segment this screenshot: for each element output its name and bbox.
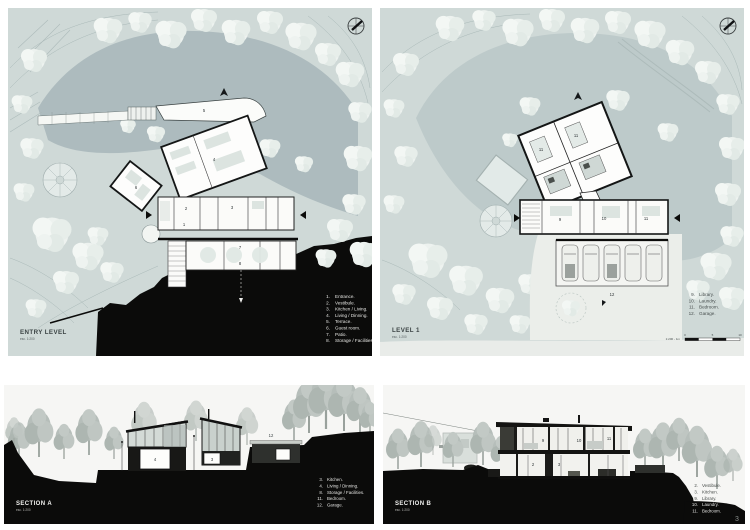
entry-wing [158,197,294,230]
legend-label: Bedroom. [702,509,721,514]
legend-label: Terrace. [335,319,352,324]
legend-label: Kitchen / Living. [335,307,367,312]
parked-cars [562,245,662,281]
legend-label: Vestibule. [335,300,355,305]
floor-slab [498,450,630,454]
legend-num: 11. [317,496,323,501]
panel-scale: esc. 1:200 [16,508,31,512]
svg-text:12: 12 [269,433,274,438]
legend-num: 3. [694,489,698,494]
legend-num: 1. [326,294,330,299]
legend-num: 3. [319,477,323,482]
legend-label: Living / Dinning. [327,483,358,488]
legend-num: 11. [689,305,695,310]
panel-title: SECTION B [395,501,432,507]
legend-label: Bedroom. [327,496,346,501]
small-round-feature [142,225,160,243]
legend-label: Guest room. [335,326,360,331]
legend-label: Storage / Facilities. [327,490,364,495]
svg-text:10: 10 [577,438,582,443]
panel-scale: esc. 1:200 [395,508,410,512]
panel-title: ENTRY LEVEL [20,329,67,336]
legend-label: Kitchen. [702,489,718,494]
legend-label: Living / Dinning. [335,313,368,318]
level-1-plan-panel: 11 11 9 10 11 12 9.Library. 10.Laundry. … [380,8,744,356]
svg-text:11: 11 [574,133,579,138]
legend-num: 4. [326,313,330,318]
legend-num: 4. [319,483,323,488]
legend-num: 7. [326,332,330,337]
legend-num: 8. [319,490,323,495]
legend-label: Library. [699,292,714,297]
terrace-shed [635,465,665,473]
base-slab [498,476,630,479]
drawing-sheet: 5 4 6 2 3 1 7 8 1.Entrance. 2.Vestibule.… [0,0,750,530]
legend-label: Library. [702,496,716,501]
svg-text:11: 11 [607,436,612,441]
legend-num: 6. [326,326,330,331]
legend-num: 10. [692,502,698,507]
legend-label: Laundry. [699,298,717,303]
legend-num: 3. [326,307,330,312]
entry-step [488,469,500,477]
legend-num: 12. [689,311,695,316]
section-a-panel: 4 3 12 3.Kitchen. 4.Living / Dinning. 8.… [4,385,374,524]
panel-title: LEVEL 1 [392,327,420,334]
svg-text:11: 11 [644,216,649,221]
legend-num: 2. [326,300,330,305]
legend-label: Kitchen. [327,477,343,482]
scale-bar-caption: 1:200 - 1m [666,337,681,341]
legend-label: Bedroom. [699,305,719,310]
page-number: 3 [735,516,739,523]
ramp-hatch [128,107,156,120]
legend-num: 9. [694,496,698,501]
legend-label: Vestibule. [702,483,721,488]
legend-label: Entrance. [335,294,355,299]
circular-terrace [43,163,77,197]
svg-text:10: 10 [602,216,607,221]
legend-label: Patio. [335,332,347,337]
legend-num: 9. [691,292,695,297]
legend-num: 10. [689,298,695,303]
stair-strip [168,241,186,287]
legend-label: Garage. [699,311,716,316]
svg-text:12: 12 [610,292,615,297]
entry-level-plan-panel: 5 4 6 2 3 1 7 8 1.Entrance. 2.Vestibule.… [8,8,372,356]
north-compass-icon [720,18,736,34]
scale-tick: 10 [738,333,742,337]
legend-num: 2. [694,483,698,488]
panel-title: SECTION A [16,501,52,507]
section-garage [250,441,302,464]
chimney [134,411,135,423]
svg-text:11: 11 [539,147,544,152]
legend-num: 11. [692,509,698,514]
legend-label: Storage / Facilities. [335,338,372,343]
legend-label: Garage. [327,503,343,508]
section-b-panel: 9 10 11 2 3 2.Vestibule. 3.Kitchen. 9.Li… [383,385,745,524]
legend-num: 5. [326,319,330,324]
panel-scale: esc. 1:200 [392,335,407,339]
north-compass-icon [348,18,364,34]
panel-scale: esc. 1:200 [20,337,35,341]
chimney [208,409,209,419]
circular-terrace [480,205,512,237]
legend-num: 8. [326,338,330,343]
legend-label: Laundry. [702,502,719,507]
legend-num: 12. [317,503,323,508]
